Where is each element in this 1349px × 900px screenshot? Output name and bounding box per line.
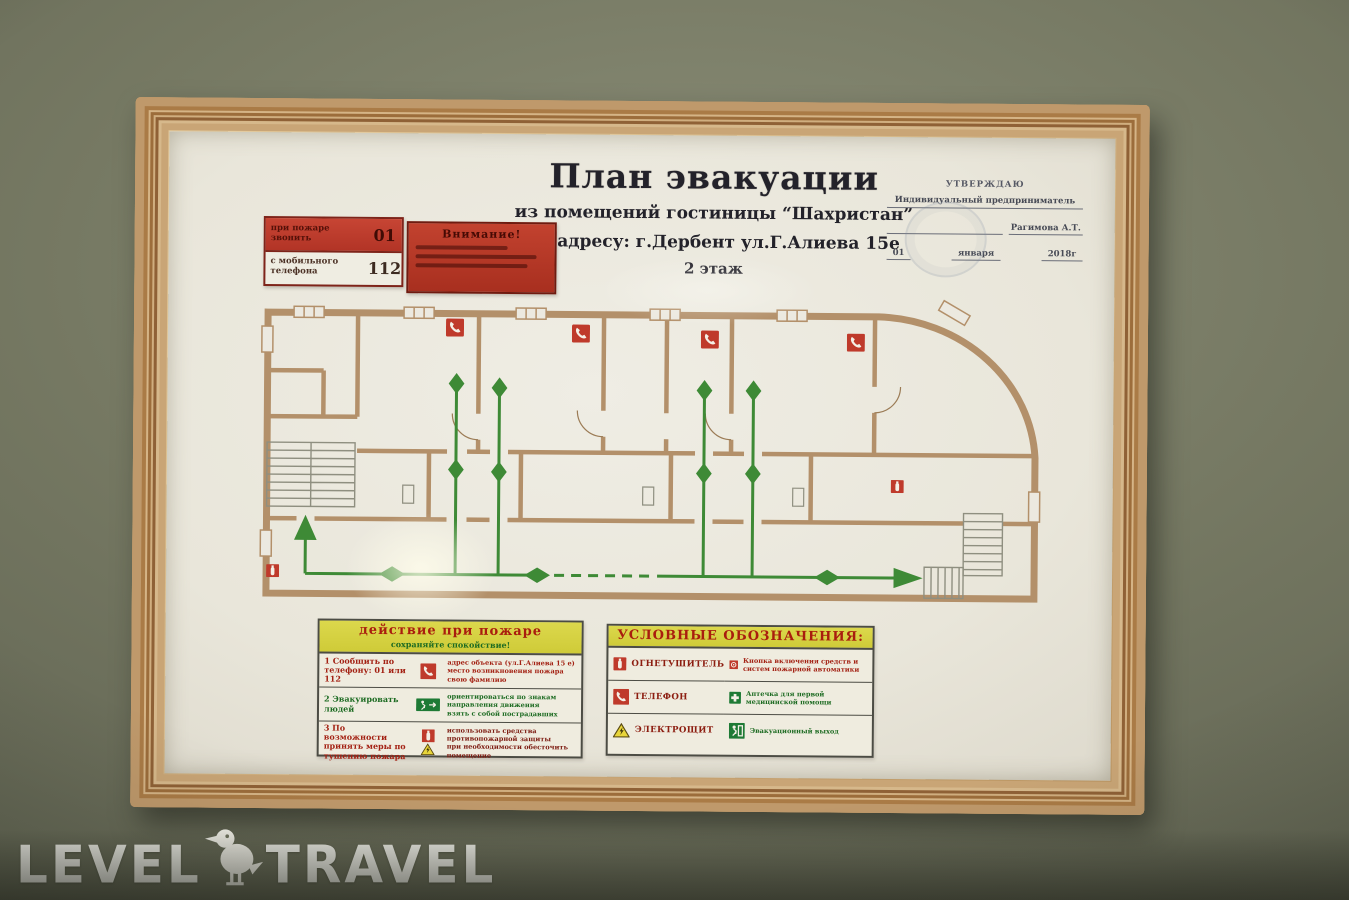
call-mobile-number: 112	[367, 258, 401, 277]
action-desc-line: свою фамилию	[447, 675, 578, 684]
legend-table: УСЛОВНЫЕ ОБОЗНАЧЕНИЯ: ОГНЕТУШИТЕЛЬ Кнопк…	[606, 624, 875, 758]
legend-label: ОГНЕТУШИТЕЛЬ	[631, 659, 724, 670]
action-label: 2 Эвакуировать людей	[319, 693, 411, 716]
bathroom-fixtures	[403, 485, 804, 506]
fire-alarm-button-icon	[729, 657, 738, 673]
legend-item: ОГНЕТУШИТЕЛЬ	[608, 648, 724, 682]
action-desc-line: взять с собой пострадавших	[447, 709, 578, 718]
legend-item: ТЕЛЕФОН	[608, 681, 724, 715]
photo-bottom-shadow	[0, 830, 1349, 900]
approver-name: Рагимова А.Т.	[1009, 223, 1083, 236]
phone-icon	[420, 663, 436, 679]
actions-header-text: действие при пожаре	[320, 622, 582, 639]
blurred-text-line	[416, 245, 508, 250]
page-subtitle: из помещений гостиницы “Шахристан”	[499, 202, 929, 225]
legend-item: ЭЛЕКТРОЩИТ	[608, 714, 724, 747]
fire-extinguisher-icon	[266, 564, 279, 577]
attention-title: Внимание!	[416, 227, 548, 241]
table-row: 2 Эвакуировать людей ориентироваться по …	[319, 687, 581, 723]
date-year: 2018г	[1042, 249, 1083, 261]
action-label: 3 По возможности принять меры по тушению…	[319, 721, 411, 762]
blurred-text-line	[416, 254, 537, 259]
page-title: План эвакуации	[499, 156, 929, 198]
blurred-text-line	[415, 263, 527, 268]
emergency-call-box: при пожаре звонить 01 с мобильного телеф…	[263, 216, 404, 287]
warning-triangle-icon	[421, 744, 435, 756]
call-mobile-label: с мобильного телефона	[265, 257, 367, 277]
phone-icon	[847, 334, 865, 352]
photo-glare	[346, 513, 497, 624]
approver-role: Индивидуальный предприниматель	[887, 195, 1083, 210]
first-aid-icon	[729, 690, 741, 706]
legend-header-text: УСЛОВНЫЕ ОБОЗНАЧЕНИЯ:	[609, 628, 873, 645]
fire-extinguisher-icon	[613, 656, 626, 672]
fire-actions-table: действие при пожаре сохраняйте спокойств…	[317, 618, 584, 758]
actions-table-header: действие при пожаре сохраняйте спокойств…	[319, 620, 581, 655]
fire-extinguisher-icon	[421, 730, 434, 743]
table-row: 3 По возможности принять меры по тушению…	[319, 721, 581, 764]
phone-icon	[613, 689, 629, 705]
legend-label: Аптечка для первой медицинской помощи	[746, 690, 872, 707]
call-fire-number: 01	[368, 225, 402, 244]
picture-frame: План эвакуации из помещений гостиницы “Ш…	[130, 97, 1150, 815]
call-fire-label: при пожаре звонить	[266, 224, 368, 244]
approval-block: УТВЕРЖДАЮ Индивидуальный предприниматель…	[887, 179, 1084, 262]
electrical-panel-icon	[613, 722, 630, 737]
phone-icon	[446, 318, 464, 336]
photo-of-evacuation-plan: План эвакуации из помещений гостиницы “Ш…	[0, 0, 1349, 900]
evacuation-plan-sheet: План эвакуации из помещений гостиницы “Ш…	[164, 131, 1115, 780]
legend-item: Кнопка включения средств и систем пожарн…	[724, 649, 872, 683]
legend-table-header: УСЛОВНЫЕ ОБОЗНАЧЕНИЯ:	[608, 626, 872, 650]
call-box-mobile-row: с мобильного телефона 112	[265, 252, 401, 283]
approval-word: УТВЕРЖДАЮ	[887, 179, 1083, 191]
emergency-exit-icon	[416, 698, 440, 711]
legend-label: Эвакуационный выход	[750, 727, 842, 736]
round-stamp	[904, 201, 987, 278]
legend-label: ТЕЛЕФОН	[634, 692, 688, 702]
legend-item: Аптечка для первой медицинской помощи	[724, 682, 872, 716]
address-line: по адресу: г.Дербент ул.Г.Алиева 15е	[499, 231, 929, 254]
call-box-fire-row: при пожаре звонить 01	[266, 218, 402, 253]
legend-label: ЭЛЕКТРОЩИТ	[635, 725, 714, 736]
legend-item: Эвакуационный выход	[724, 715, 872, 748]
fire-extinguisher-icon	[891, 480, 904, 493]
actions-subheader-text: сохраняйте спокойствие!	[319, 638, 581, 650]
phone-icon	[701, 330, 719, 348]
emergency-exit-icon	[729, 723, 745, 739]
action-label: 1 Сообщить по телефону: 01 или 112	[319, 654, 411, 686]
phone-icon	[572, 324, 590, 342]
door-arcs	[452, 384, 900, 444]
legend-label: Кнопка включения средств и систем пожарн…	[743, 657, 872, 674]
action-desc-line: при необходимости обесточить помещение	[447, 743, 578, 760]
attention-box: Внимание!	[406, 221, 557, 294]
table-row: 1 Сообщить по телефону: 01 или 112 адрес…	[319, 653, 581, 689]
